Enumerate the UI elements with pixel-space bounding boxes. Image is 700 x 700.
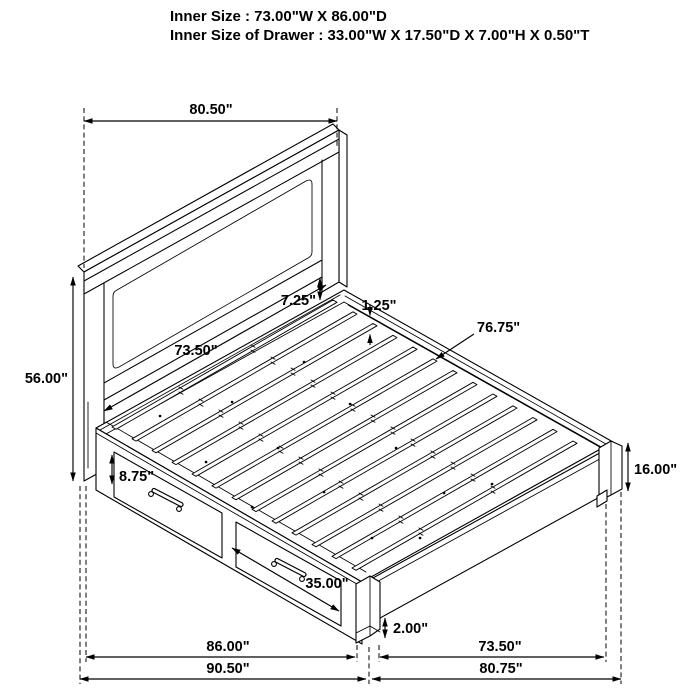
dim-slat-length-label: 76.75" [477, 320, 520, 336]
bed-dimension-diagram: 80.50" 56.00" 73.50" 7.25" 1.25" [0, 0, 700, 700]
dim-headboard-width-label: 80.50" [189, 102, 232, 118]
dim-footboard-height-label: 16.00" [634, 462, 677, 478]
drawer-2-handle-post-right [300, 577, 305, 582]
dim-ground-clearance: 2.00" [385, 618, 428, 638]
dim-headboard-panel-gap-label: 7.25" [281, 293, 316, 309]
dim-drawer-front-width-label: 35.00" [305, 576, 348, 592]
dim-overall-height: 56.00" [25, 277, 73, 481]
dim-headboard-width: 80.50" [84, 102, 337, 121]
front-leg [356, 576, 380, 643]
dim-overall-height-label: 56.00" [25, 371, 68, 387]
dim-headboard-inner-width-label: 73.50" [174, 343, 217, 359]
dim-ground-clearance-label: 2.00" [393, 621, 428, 637]
drawer-1-handle-post-right [177, 507, 182, 512]
dim-inner-depth-label: 86.00" [206, 639, 249, 655]
rear-leg [599, 441, 622, 501]
dim-footboard-outer-width: 80.75" [372, 661, 621, 679]
dim-slat-thickness-label: 1.25" [361, 298, 396, 314]
dim-footboard-height: 16.00" [628, 443, 677, 491]
dim-side-rail-top-height-label: 8.75" [119, 469, 154, 485]
dim-outer-depth: 90.50" [80, 661, 366, 679]
technical-drawing-page: Inner Size : 73.00"W X 86.00"D Inner Siz… [0, 0, 700, 700]
dim-inner-depth: 86.00" [86, 639, 355, 657]
dim-footboard-inner-width-label: 73.50" [478, 639, 521, 655]
dim-footboard-inner-width: 73.50" [380, 639, 604, 657]
headboard-right-edge-face [339, 130, 347, 287]
dim-footboard-outer-width-label: 80.75" [479, 661, 522, 677]
dim-outer-depth-label: 90.50" [206, 661, 249, 677]
